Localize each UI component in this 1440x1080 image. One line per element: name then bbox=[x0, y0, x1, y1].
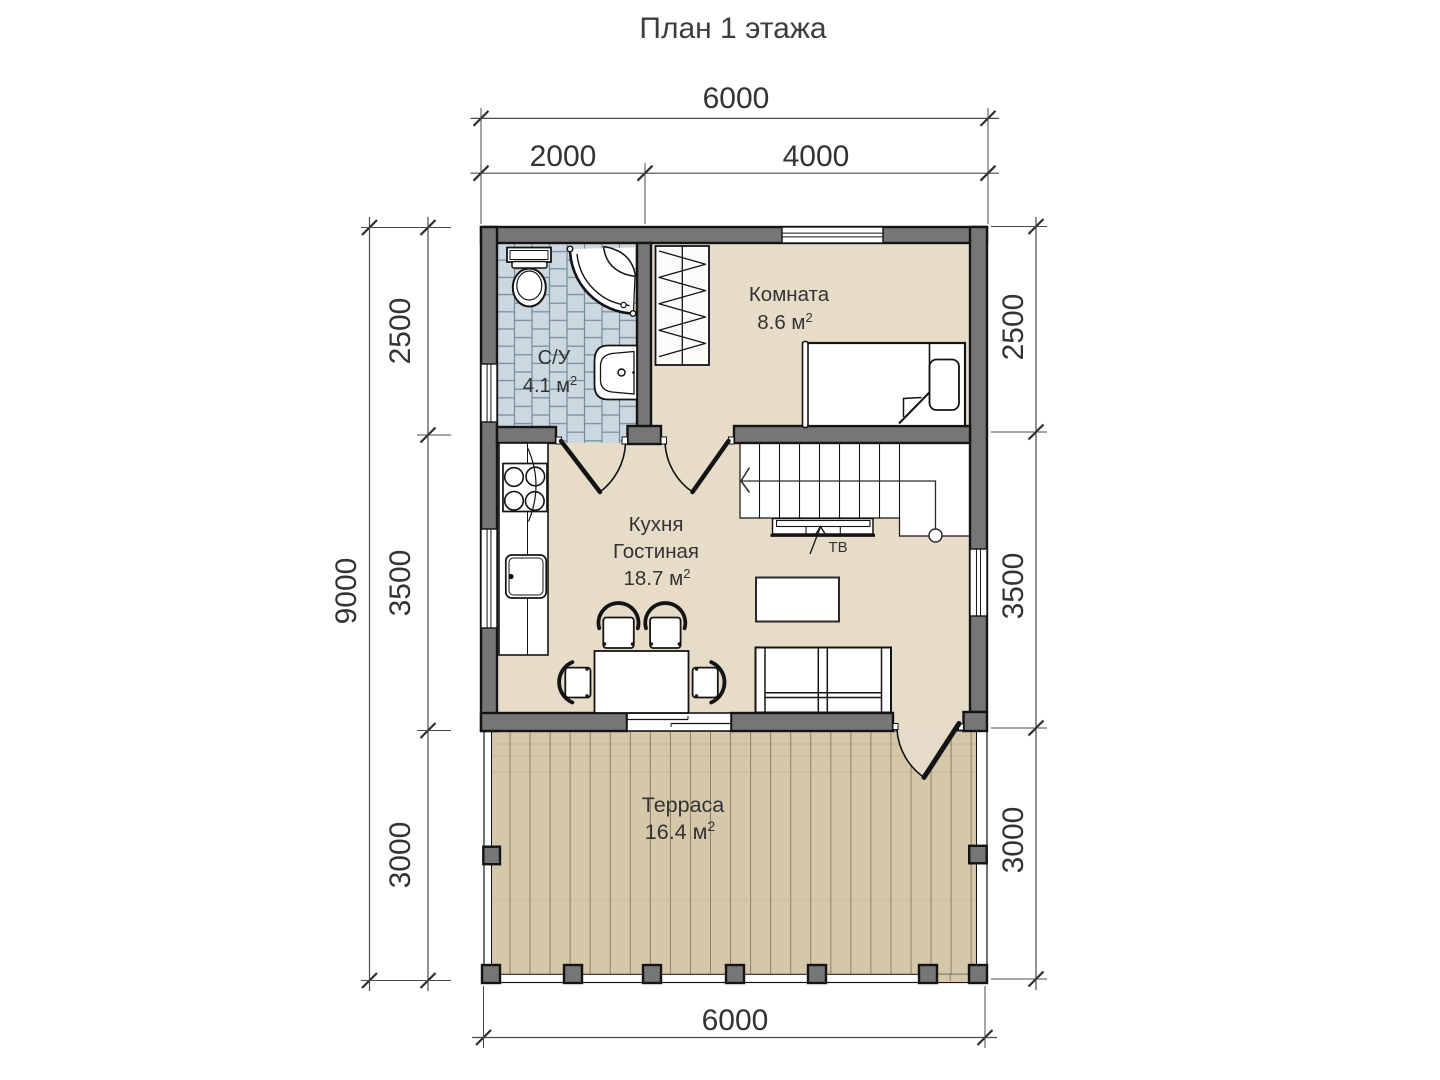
svg-text:2000: 2000 bbox=[530, 140, 597, 173]
svg-text:8.6 м2: 8.6 м2 bbox=[757, 310, 813, 334]
svg-text:С/У: С/У bbox=[538, 347, 571, 369]
svg-text:3500: 3500 bbox=[384, 550, 417, 617]
svg-text:16.4 м2: 16.4 м2 bbox=[645, 818, 716, 844]
svg-text:6000: 6000 bbox=[703, 82, 770, 115]
svg-text:3000: 3000 bbox=[384, 822, 417, 889]
svg-text:18.7 м2: 18.7 м2 bbox=[624, 566, 691, 590]
svg-text:2500: 2500 bbox=[997, 294, 1030, 361]
svg-text:4000: 4000 bbox=[783, 140, 850, 173]
svg-text:Кухня: Кухня bbox=[629, 513, 684, 536]
svg-text:9000: 9000 bbox=[330, 558, 363, 625]
svg-text:4.1 м2: 4.1 м2 bbox=[523, 373, 577, 397]
svg-text:ТВ: ТВ bbox=[828, 539, 847, 556]
svg-text:Гостиная: Гостиная bbox=[613, 540, 699, 563]
svg-text:2500: 2500 bbox=[384, 298, 417, 365]
svg-text:3000: 3000 bbox=[997, 807, 1030, 874]
svg-text:Терраса: Терраса bbox=[642, 793, 725, 817]
svg-text:План 1 этажа: План 1 этажа bbox=[639, 12, 826, 45]
svg-text:6000: 6000 bbox=[702, 1004, 769, 1037]
svg-text:3500: 3500 bbox=[997, 553, 1030, 620]
svg-text:Комната: Комната bbox=[749, 283, 830, 306]
